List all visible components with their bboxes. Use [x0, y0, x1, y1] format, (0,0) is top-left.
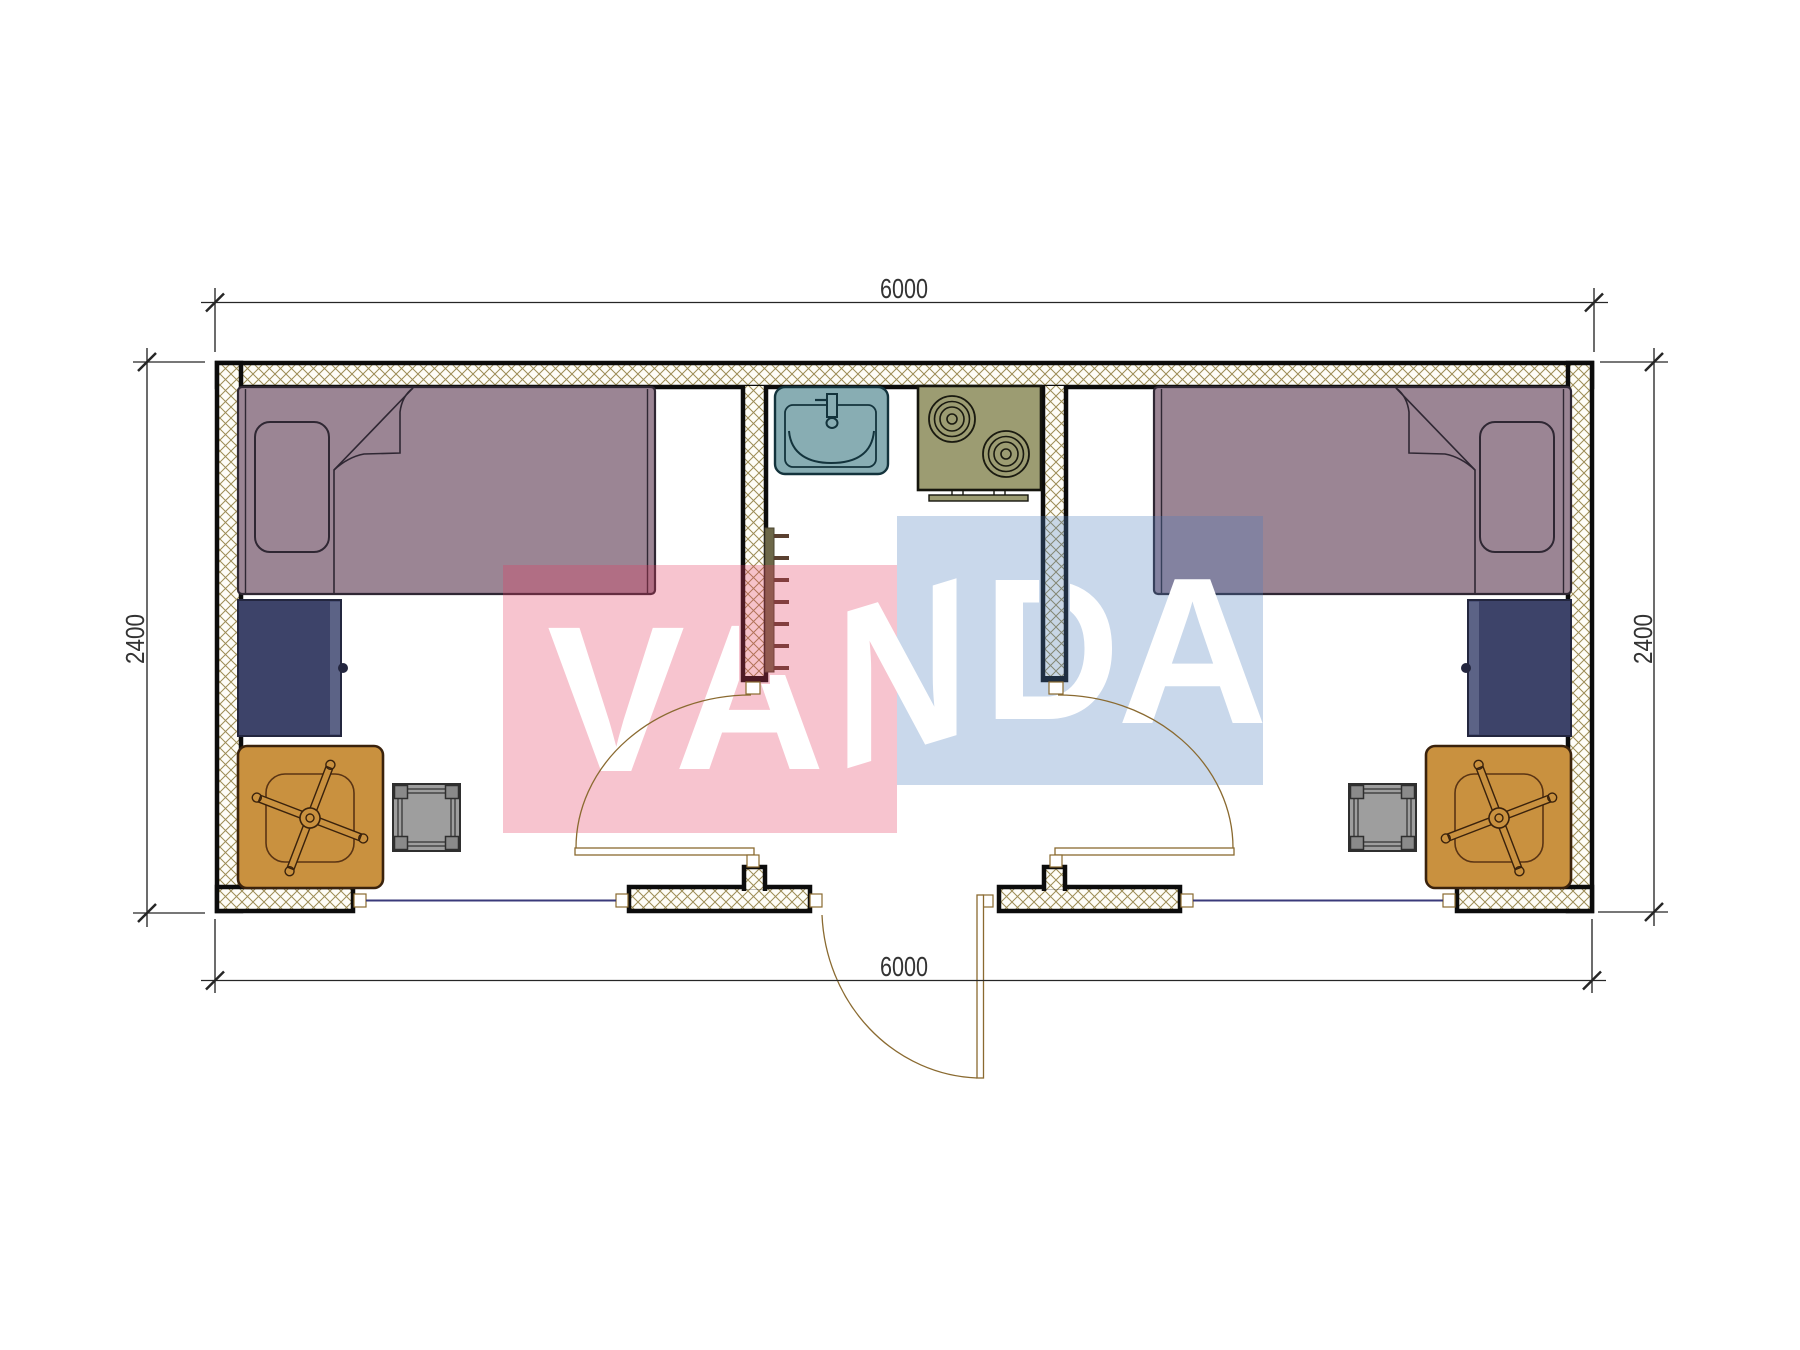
svg-text:2400: 2400: [120, 614, 150, 664]
svg-text:D: D: [983, 536, 1120, 762]
svg-text:2400: 2400: [1628, 614, 1658, 664]
svg-text:V: V: [547, 584, 685, 816]
svg-text:N: N: [835, 526, 969, 821]
svg-text:6000: 6000: [880, 951, 928, 982]
svg-text:A: A: [674, 582, 825, 814]
svg-text:A: A: [1117, 535, 1268, 768]
svg-text:6000: 6000: [880, 273, 928, 304]
